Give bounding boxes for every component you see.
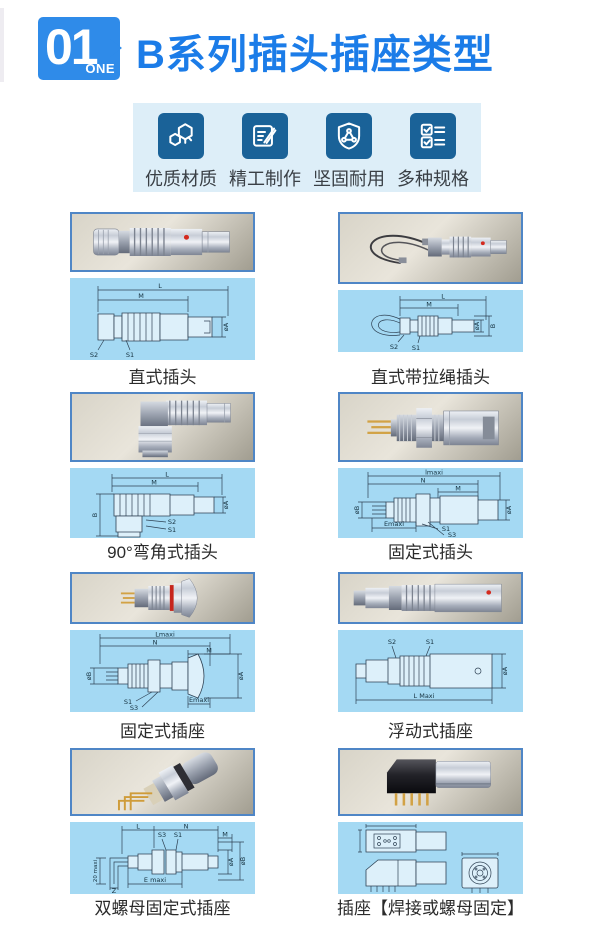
dim-label: øB: [353, 506, 361, 514]
feature-label: 优质材质: [141, 165, 221, 191]
dim-label: lmaxi: [425, 469, 443, 477]
feature-many-specs: 多种规格: [393, 113, 473, 192]
technical-drawing-box: L M B øA S2 S1: [70, 468, 255, 538]
feature-label: 精工制作: [225, 165, 305, 191]
product-card-double-nut-socket: L N M S3 S1 20 maxi E maxi Z øA: [70, 748, 255, 918]
product-caption: 直式带拉绳插头: [371, 363, 490, 388]
badge-tail-arrow: [110, 39, 131, 57]
feature-strip: 优质材质 精工制作 坚固耐用: [133, 103, 481, 192]
dim-label: øA: [222, 322, 230, 331]
dim-label: S2: [168, 518, 176, 526]
dim-label: øA: [222, 500, 230, 509]
product-caption: 双螺母固定式插座: [95, 894, 231, 919]
dim-label: L: [136, 823, 140, 831]
dim-label: øA: [227, 857, 235, 866]
catalog-page: 01 ONE B系列插头插座类型 优质材质: [0, 0, 600, 930]
product-photo-box: [70, 392, 255, 462]
dim-label: M: [151, 479, 157, 487]
dim-label: øB: [85, 672, 93, 680]
product-row-4: L N M S3 S1 20 maxi E maxi Z øA: [0, 748, 600, 918]
floating-socket-drawing: S2 S1 øA L Maxi: [338, 630, 523, 712]
product-caption: 固定式插座: [120, 717, 205, 742]
shield-triangle-icon: [326, 113, 372, 159]
dim-label: M: [455, 485, 461, 493]
dim-label: S2: [390, 343, 398, 351]
dim-label: S3: [158, 831, 166, 839]
left-edge-strip: [0, 8, 4, 82]
product-row-3: Lmaxi N M øB øA S1 S3 Emaxi: [0, 572, 600, 742]
product-photo-box: [70, 212, 255, 272]
dim-label: Lmaxi: [155, 631, 175, 639]
product-card-straight-plug: L M øA S2 S1 直式插头: [70, 212, 255, 388]
hexagons-icon: [158, 113, 204, 159]
dim-label: M: [426, 301, 432, 309]
product-card-elbow-plug: L M B øA S2 S1 90°弯角式插头: [70, 392, 255, 560]
product-caption: 浮动式插座: [388, 717, 473, 742]
product-photo-box: [70, 572, 255, 624]
dim-label: S3: [130, 704, 138, 712]
dim-label: øA: [473, 321, 481, 330]
dim-label: L Maxi: [414, 692, 435, 700]
feature-label: 多种规格: [393, 165, 473, 191]
dim-label: B: [489, 324, 497, 328]
fixed-socket-drawing: Lmaxi N M øB øA S1 S3 Emaxi: [70, 630, 255, 712]
straight-plug-drawing: L M øA S2 S1: [70, 278, 255, 360]
product-card-straight-plug-lanyard: L M øA B S2 S1 直式带拉绳插头: [338, 212, 523, 388]
elbow-plug-drawing: L M B øA S2 S1: [70, 468, 255, 538]
dim-label: Z: [112, 887, 117, 894]
dim-label: L: [158, 282, 162, 290]
dim-label: M: [138, 292, 144, 300]
dim-label: S3: [448, 531, 456, 538]
dim-label: N: [421, 477, 426, 485]
technical-drawing-box: lmaxi N M øB øA Emaxi S1 S3: [338, 468, 523, 538]
fixed-plug-drawing: lmaxi N M øB øA Emaxi S1 S3: [338, 468, 523, 538]
product-caption: 插座【焊接或螺母固定】: [337, 894, 524, 919]
dim-label: 20 maxi: [93, 859, 99, 882]
solder-socket-drawing: [338, 822, 523, 894]
product-photo-box: [338, 748, 523, 816]
lanyard-plug-photo: [340, 214, 521, 282]
product-photo-box: [338, 572, 523, 624]
product-caption: 直式插头: [129, 363, 197, 388]
section-number-badge: 01 ONE: [38, 17, 120, 80]
dim-label: Emaxi: [384, 520, 404, 528]
fixed-plug-photo: [340, 394, 521, 460]
double-nut-socket-photo: [72, 750, 253, 814]
feature-durable: 坚固耐用: [309, 113, 389, 192]
fixed-socket-photo: [72, 574, 253, 622]
product-photo-box: [70, 748, 255, 816]
dim-label: N: [153, 639, 158, 647]
product-card-fixed-socket: Lmaxi N M øB øA S1 S3 Emaxi: [70, 572, 255, 742]
dim-label: S1: [174, 831, 182, 839]
notepad-pen-icon: [242, 113, 288, 159]
product-card-fixed-plug: lmaxi N M øB øA Emaxi S1 S3 固定式: [338, 392, 523, 560]
product-caption: 固定式插头: [388, 538, 473, 563]
dim-label: L: [165, 471, 169, 479]
product-photo-box: [338, 212, 523, 284]
dim-label: S1: [412, 344, 420, 352]
feature-quality-material: 优质材质: [141, 113, 221, 192]
product-photo-box: [338, 392, 523, 462]
product-caption: 90°弯角式插头: [107, 538, 218, 563]
dim-label: S1: [426, 638, 434, 646]
solder-socket-photo: [340, 750, 521, 814]
dim-label: E maxi: [144, 876, 166, 884]
feature-label: 坚固耐用: [309, 165, 389, 191]
technical-drawing-box: L M øA S2 S1: [70, 278, 255, 360]
dim-label: Emaxi: [189, 696, 209, 704]
lanyard-plug-drawing: L M øA B S2 S1: [338, 290, 523, 352]
dim-label: S2: [90, 351, 98, 359]
straight-plug-photo: [72, 214, 253, 270]
dim-label: S1: [126, 351, 134, 359]
badge-word: ONE: [85, 61, 115, 76]
feature-precision-made: 精工制作: [225, 113, 305, 192]
dim-label: S2: [388, 638, 396, 646]
floating-socket-photo: [340, 574, 521, 622]
elbow-plug-photo: [72, 394, 253, 460]
technical-drawing-box: S2 S1 øA L Maxi: [338, 630, 523, 712]
dim-label: S1: [168, 526, 176, 534]
technical-drawing-box: [338, 822, 523, 894]
product-row-1: L M øA S2 S1 直式插头: [0, 212, 600, 388]
dim-label: N: [184, 823, 189, 831]
checklist-icon: [410, 113, 456, 159]
technical-drawing-box: L N M S3 S1 20 maxi E maxi Z øA: [70, 822, 255, 894]
product-card-floating-socket: S2 S1 øA L Maxi 浮动式插座: [338, 572, 523, 742]
dim-label: øB: [239, 857, 247, 865]
product-card-solder-socket: 插座【焊接或螺母固定】: [338, 748, 523, 918]
dim-label: L: [441, 293, 445, 301]
technical-drawing-box: L M øA B S2 S1: [338, 290, 523, 352]
dim-label: M: [206, 647, 212, 655]
dim-label: øA: [237, 671, 245, 680]
dim-label: M: [222, 831, 228, 839]
dim-label: øA: [501, 666, 509, 675]
dim-label: øA: [505, 505, 513, 514]
double-nut-socket-drawing: L N M S3 S1 20 maxi E maxi Z øA: [70, 822, 255, 894]
page-title: B系列插头插座类型: [136, 22, 494, 80]
dim-label: B: [91, 513, 99, 517]
product-row-2: L M B øA S2 S1 90°弯角式插头: [0, 392, 600, 560]
technical-drawing-box: Lmaxi N M øB øA S1 S3 Emaxi: [70, 630, 255, 712]
